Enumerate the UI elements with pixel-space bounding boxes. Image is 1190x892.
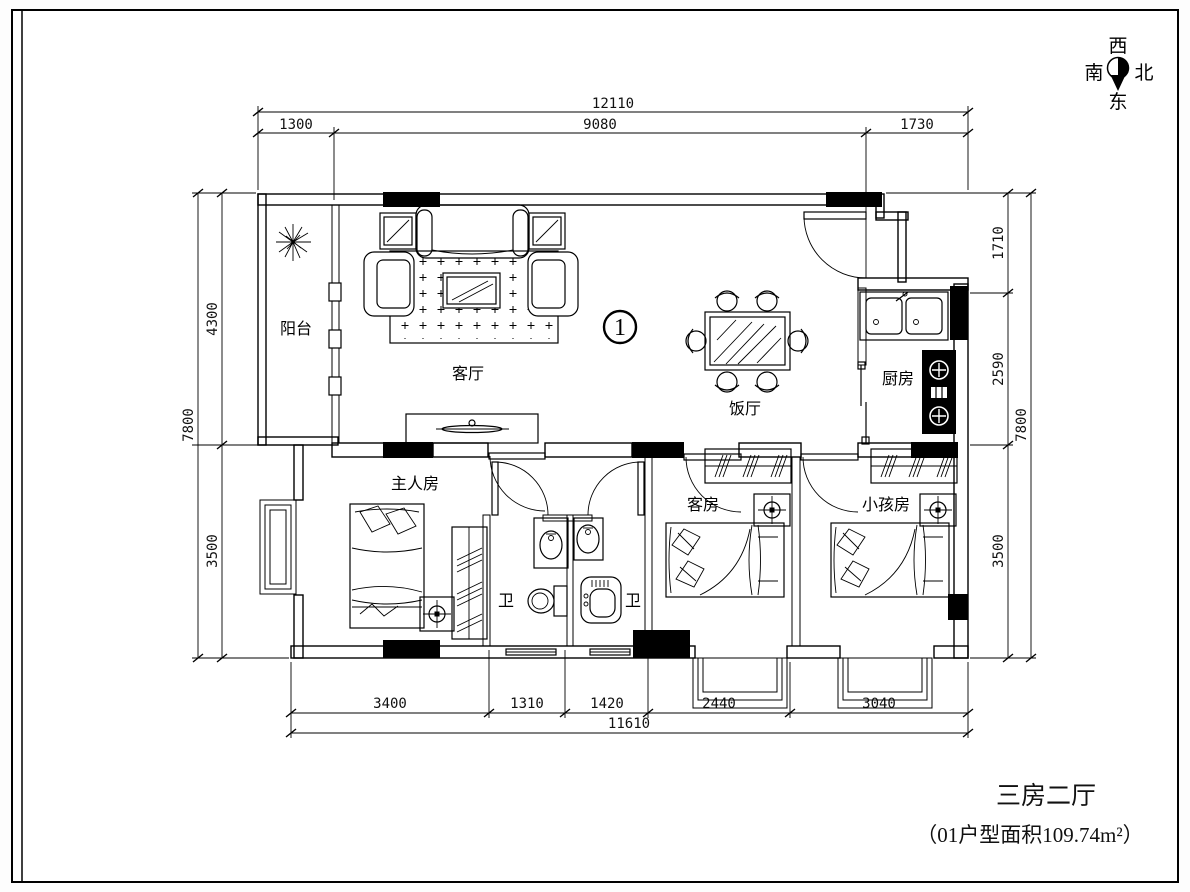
guest-label: 客房	[687, 496, 719, 514]
unit-number: 1	[614, 315, 626, 341]
plan-title: 三房二厅	[996, 782, 1096, 810]
compass-east: 东	[1108, 91, 1127, 113]
dim-bot-overall: 11610	[608, 716, 650, 732]
dim-top-seg3: 1730	[900, 117, 934, 133]
dim-bot-seg2: 1310	[510, 696, 544, 712]
dim-bot-seg5: 3040	[862, 696, 896, 712]
dim-right-overall: 7800	[1014, 408, 1030, 442]
dim-left-overall: 7800	[181, 408, 197, 442]
compass-north: 北	[1134, 62, 1153, 84]
bath1-label: 卫	[498, 593, 514, 610]
master-label: 主人房	[391, 475, 439, 493]
dining-label: 饭厅	[729, 400, 761, 418]
dim-top-seg2: 9080	[583, 117, 617, 133]
dim-top-seg1: 1300	[279, 117, 313, 133]
stove	[922, 350, 956, 434]
sheet-border	[12, 10, 1178, 882]
plan-subtitle: （01户型面积109.74m²）	[916, 823, 1143, 847]
dim-right-seg3: 3500	[991, 534, 1007, 568]
dim-right-seg1: 1710	[991, 226, 1007, 260]
dim-top-overall: 12110	[592, 96, 634, 112]
dim-bot-seg3: 1420	[590, 696, 624, 712]
floor-plan-sheet: 西 南 北 东 12110 1300 9080 1730	[0, 0, 1190, 892]
armchair-left	[364, 252, 414, 316]
compass-south: 南	[1084, 62, 1103, 84]
living-label: 客厅	[452, 365, 484, 383]
kids-label: 小孩房	[862, 496, 910, 514]
dim-right-seg2: 2590	[991, 352, 1007, 386]
kitchen-label: 厨房	[882, 370, 914, 388]
dim-left-seg2: 3500	[205, 534, 221, 568]
dim-left-seg1: 4300	[205, 302, 221, 336]
compass-west: 西	[1108, 36, 1127, 57]
balcony-label: 阳台	[280, 320, 312, 338]
coffee-table	[443, 273, 500, 308]
dim-bot-seg1: 3400	[373, 696, 407, 712]
dim-bot-seg4: 2440	[702, 696, 736, 712]
armchair-right	[528, 252, 578, 316]
bath2-label: 卫	[625, 593, 641, 610]
